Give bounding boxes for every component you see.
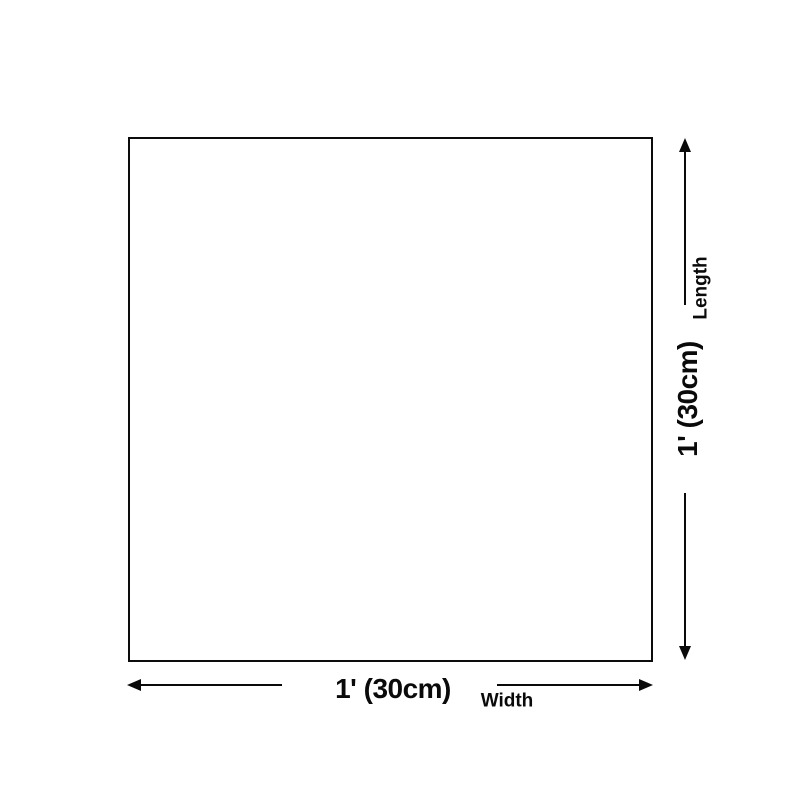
dimension-line: [497, 684, 643, 686]
width-value: 1' (30cm): [335, 675, 451, 703]
dimension-line: [684, 148, 686, 305]
horizontal-dimension-arrow-left: [127, 678, 282, 692]
width-label: Width: [481, 692, 534, 711]
length-value: 1' (30cm): [674, 341, 702, 457]
dimension-diagram: Length 1' (30cm) 1' (30cm) Width: [0, 0, 800, 800]
arrow-down-icon: [679, 646, 691, 660]
square-shape-outline: [128, 137, 653, 662]
arrow-right-icon: [639, 679, 653, 691]
dimension-line: [684, 493, 686, 650]
dimension-line: [137, 684, 282, 686]
length-label: Length: [692, 256, 711, 319]
vertical-dimension-arrow-bottom: [678, 493, 692, 660]
